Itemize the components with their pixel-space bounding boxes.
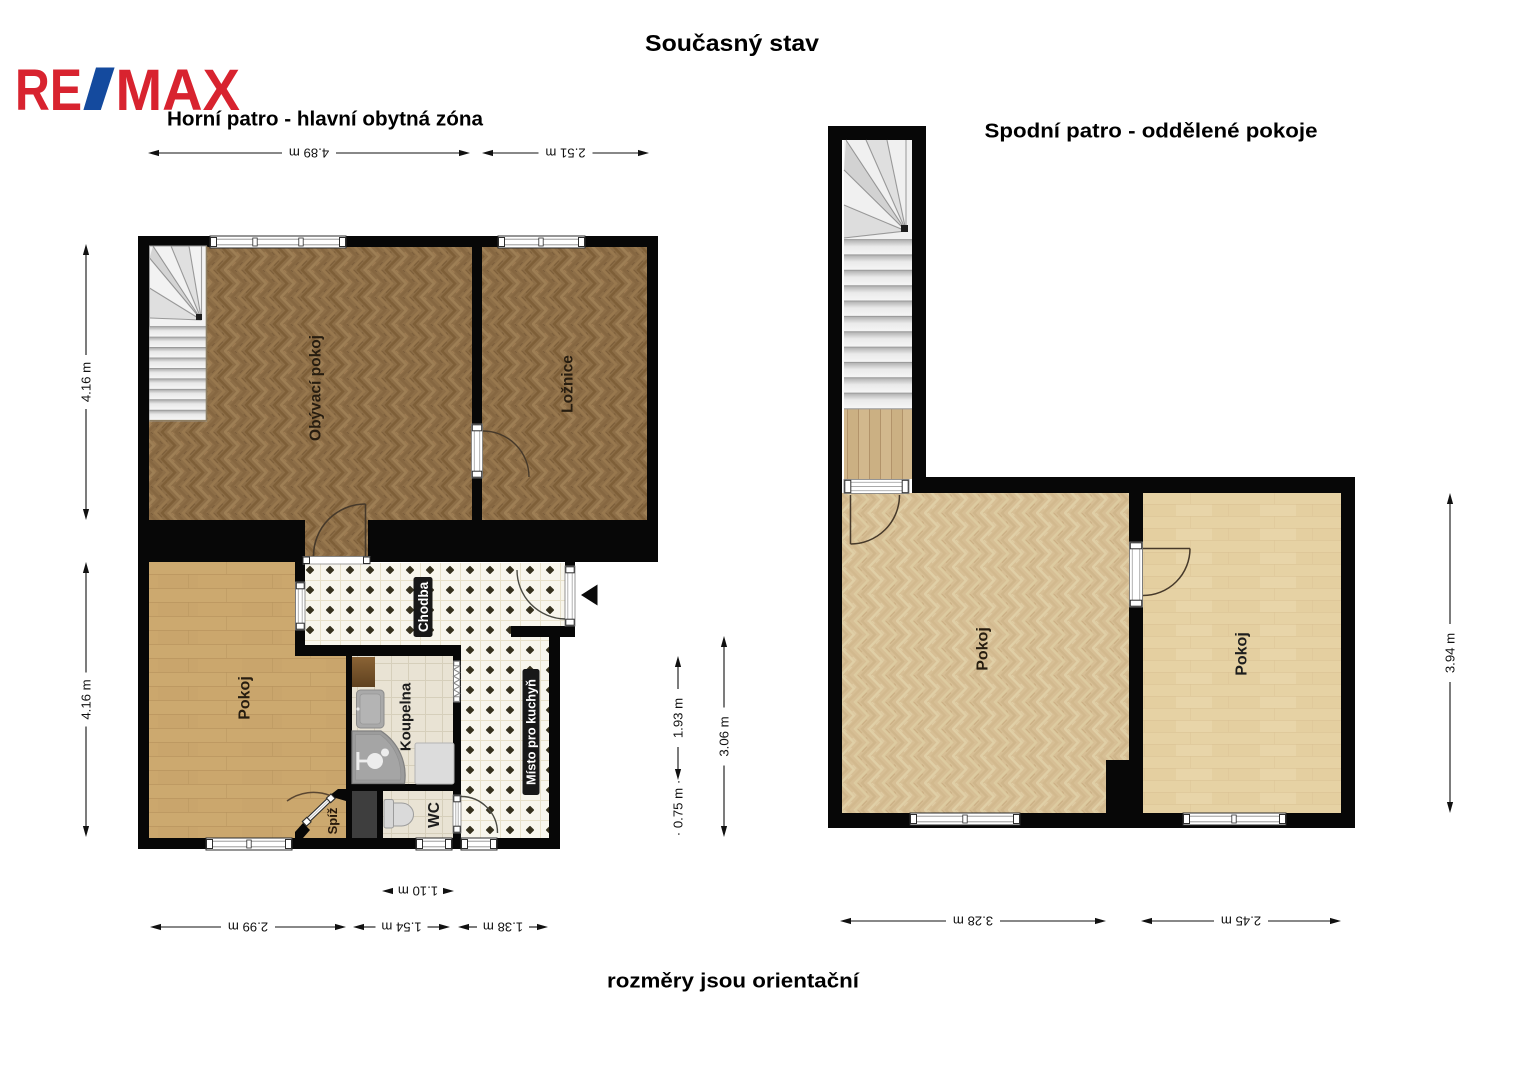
svg-text:Místo pro kuchyň: Místo pro kuchyň <box>524 679 539 785</box>
svg-text:· 0.75 m ·: · 0.75 m · <box>671 780 686 836</box>
svg-text:Chodba: Chodba <box>416 581 431 632</box>
svg-text:1.54 m: 1.54 m <box>381 920 421 935</box>
svg-text:Koupelna: Koupelna <box>398 682 415 751</box>
svg-text:Spodní patro - oddělené pokoje: Spodní patro - oddělené pokoje <box>985 120 1318 143</box>
svg-text:Horní patro - hlavní obytná zó: Horní patro - hlavní obytná zóna <box>167 108 484 131</box>
svg-text:3.06 m: 3.06 m <box>717 716 732 756</box>
svg-text:2.51 m: 2.51 m <box>545 146 585 161</box>
svg-text:1.38 m: 1.38 m <box>483 920 523 935</box>
svg-text:Ložnice: Ložnice <box>560 355 577 413</box>
svg-text:Pokoj: Pokoj <box>237 676 254 720</box>
svg-text:4.16 m: 4.16 m <box>79 679 94 719</box>
svg-text:rozměry jsou orientační: rozměry jsou orientační <box>607 970 860 993</box>
svg-text:Pokoj: Pokoj <box>975 627 992 671</box>
svg-text:2.45 m: 2.45 m <box>1221 914 1261 929</box>
svg-text:4.16 m: 4.16 m <box>79 362 94 402</box>
svg-text:Současný stav: Současný stav <box>645 30 819 56</box>
svg-text:1.93 m: 1.93 m <box>671 698 686 738</box>
svg-text:WC: WC <box>426 802 443 828</box>
svg-text:Obývací pokoj: Obývací pokoj <box>308 335 325 441</box>
svg-text:2.99 m: 2.99 m <box>228 920 268 935</box>
svg-text:RE: RE <box>15 58 82 123</box>
svg-text:3.94 m: 3.94 m <box>1443 633 1458 673</box>
svg-text:Spíž: Spíž <box>325 807 340 834</box>
svg-text:1.10 m: 1.10 m <box>398 884 438 899</box>
svg-text:3.28 m: 3.28 m <box>953 914 993 929</box>
svg-text:Pokoj: Pokoj <box>1234 632 1251 676</box>
svg-text:4.89 m: 4.89 m <box>289 146 329 161</box>
